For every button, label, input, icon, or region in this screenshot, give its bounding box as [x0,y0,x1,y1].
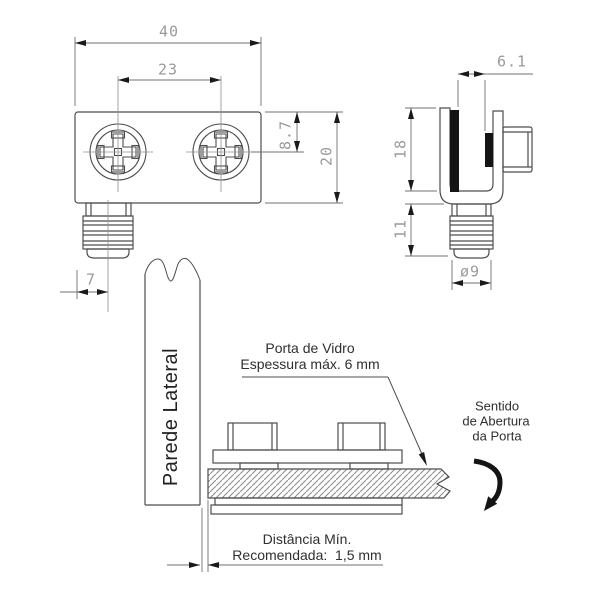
opening-direction-line2: de Abertura [462,415,529,428]
gasket-pads [450,110,493,192]
front-dimension-arrows [75,40,340,295]
gasket-left [450,110,459,192]
glass-note-leader [242,377,425,461]
glass-note-arrowhead [419,452,427,466]
min-distance-line1: Distância Mín. [263,532,352,546]
glass-door [208,469,450,498]
glass-note-line2: Espessura máx. 6 mm [240,357,379,371]
dim-pin-diameter-label: ø9 [460,265,480,280]
wall-label: Parede Lateral [161,348,181,486]
channel-body [440,108,503,204]
drawing-linework [0,0,600,600]
min-distance-line2: Recomendada: 1,5 mm [232,548,381,562]
side-boss [503,127,532,172]
dim-width-label: 40 [159,25,179,40]
distance-dimension-arrows [189,562,219,568]
dim-body-depth-label: 18 [394,139,409,159]
installation-view [145,258,450,514]
technical-drawing-page: 40 23 8.7 20 7 6.1 18 11 ø9 Parede Later… [0,0,600,600]
dim-slot-width-label: 6.1 [497,55,527,70]
opening-direction-line3: da Porta [472,430,521,443]
opening-direction-line1: Sentido [475,400,519,413]
dim-screw-spacing-label: 23 [158,63,178,78]
glass-note-line1: Porta de Vidro [265,341,354,355]
dim-pin-offset-label: 7 [86,273,96,288]
dim-pin-length-label: 11 [394,219,409,239]
dim-height-label: 20 [320,146,335,166]
door-opening-arrow-icon [474,461,500,511]
dim-screw-offset-label: 8.7 [279,120,294,150]
side-pin [450,204,493,258]
gasket-right [485,133,493,167]
